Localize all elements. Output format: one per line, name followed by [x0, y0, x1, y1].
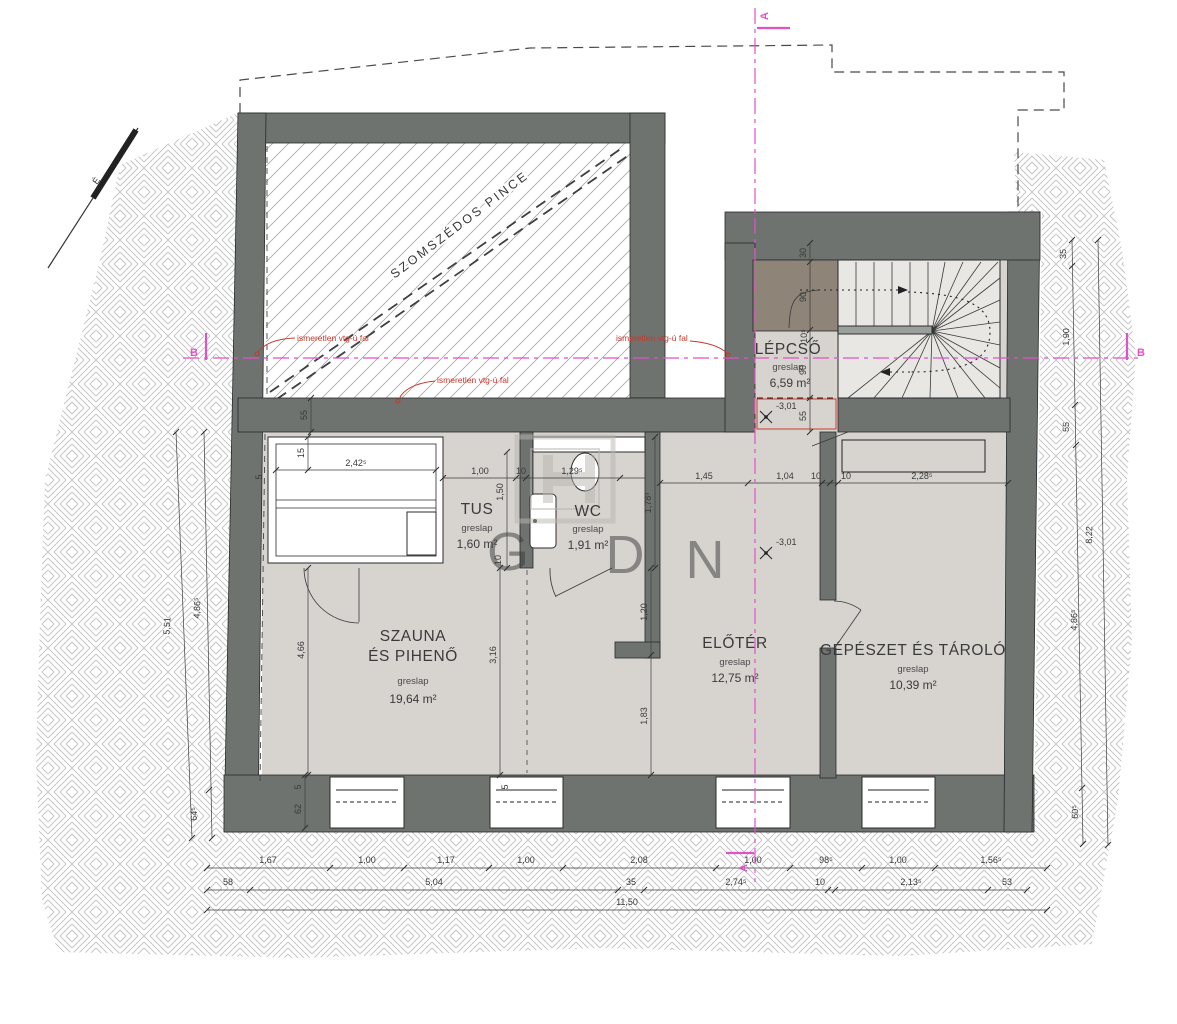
dim-stair-90b: 90	[798, 365, 808, 375]
dim-r2-2: 35	[626, 877, 636, 887]
wall-note-1: ismeretlen vtg-ú fal	[297, 333, 369, 343]
tus-name: TUS	[461, 501, 494, 518]
watermark-letter-g: G	[487, 522, 529, 582]
wall-row-horizontal	[238, 398, 755, 432]
room-label-tus: TUS greslap 1,60 m²	[457, 501, 498, 551]
section-b-left-label: B	[190, 347, 198, 359]
dim-cabin-w: 2,42⁵	[345, 458, 367, 468]
dim-window2-5: 5	[500, 784, 510, 789]
dim-r2-4: 10	[815, 877, 825, 887]
window-1	[330, 777, 404, 828]
dim-r1-2: 1,17	[437, 855, 455, 865]
dim-left-total: 5,51	[162, 617, 173, 635]
section-a-bottom-label: A	[738, 864, 750, 872]
dim-r1-1: 1,00	[358, 855, 376, 865]
dim-eloter-3: 10	[811, 471, 821, 481]
eloter-material: greslap	[719, 657, 750, 668]
gep-duct	[842, 440, 985, 472]
wall-note-leader-2	[690, 341, 727, 353]
sauna-material: greslap	[397, 676, 428, 687]
wall-stair-left	[725, 243, 755, 432]
watermark-letter-d: D	[606, 525, 645, 585]
wall-right	[1004, 212, 1040, 832]
dim-tuswc-wall: 10	[516, 466, 526, 476]
gepeszet-name: GÉPÉSZET ÉS TÁROLÓ	[820, 642, 1006, 659]
sauna-area: 19,64 m²	[389, 692, 436, 706]
dim-wc-w: 1,29⁵	[561, 466, 583, 476]
dim-r1-8: 1,56⁵	[980, 855, 1002, 865]
sauna-stove	[407, 512, 436, 555]
dim-stair-55: 55	[798, 411, 808, 421]
floor-plan-drawing: SZOMSZÉDOS PINCE	[0, 0, 1177, 1024]
wc-name: WC	[574, 503, 601, 520]
dim-r2-5: 2,13⁵	[900, 877, 922, 887]
wall-top	[238, 113, 665, 143]
dim-right-total: 8,22	[1084, 526, 1094, 544]
dim-right-190: 1,90	[1061, 328, 1071, 346]
wall-gep-divider-upper	[820, 432, 836, 600]
wall-stub	[615, 642, 660, 658]
dim-v-316: 3,16	[488, 646, 498, 664]
wall-stair-top	[725, 212, 1040, 260]
floor-plan-canvas: SZOMSZÉDOS PINCE	[0, 0, 1177, 1024]
dim-v-183: 1,83	[639, 707, 649, 725]
dim-stair-30: 30	[798, 248, 808, 258]
eloter-name: ELŐTÉR	[702, 635, 768, 652]
dim-stair-90a: 90	[798, 292, 808, 302]
sauna-name-line1: SZAUNA	[380, 628, 447, 645]
dim-v-15: 15	[296, 448, 306, 458]
window-4	[862, 777, 935, 828]
section-a-top-label: A	[759, 12, 771, 20]
dim-right-486: 4,86⁵	[1069, 609, 1079, 631]
wall-mid-vertical	[630, 113, 665, 398]
wall-stair-bottom	[838, 398, 1010, 432]
lepcso-name: LÉPCSŐ	[755, 341, 822, 358]
window-3	[716, 777, 790, 828]
dim-r2-6: 53	[1002, 877, 1012, 887]
stair-landing	[753, 260, 838, 331]
lepcso-area: 6,59 m²	[770, 376, 811, 390]
section-b-right-label: B	[1137, 347, 1145, 359]
neighbor-cellar-area: SZOMSZÉDOS PINCE	[266, 143, 632, 399]
level-mark-2: -3,01	[776, 537, 797, 547]
dim-right-55: 55	[1061, 422, 1071, 432]
dim-v-466: 4,66	[296, 641, 306, 659]
dim-gep-2: 2,28⁵	[911, 471, 933, 481]
dim-window-62: 62	[293, 804, 303, 814]
dim-r1-6: 98⁵	[819, 855, 833, 865]
stair-rail	[838, 326, 932, 334]
dim-v-5: 5	[254, 474, 264, 479]
dim-right-60: 60⁵	[1070, 805, 1080, 819]
dim-gep-1: 10	[841, 471, 851, 481]
dim-r1-3: 1,00	[517, 855, 535, 865]
dim-r1-5: 1,00	[744, 855, 762, 865]
dim-r1-7: 1,00	[889, 855, 907, 865]
dim-window-5: 5	[293, 784, 303, 789]
eloter-area: 12,75 m²	[711, 671, 758, 685]
dim-stair-10: 10⁵	[799, 329, 809, 343]
dim-v-120: 1,20	[639, 603, 649, 621]
watermark-letter-n: N	[686, 530, 725, 590]
wc-material: greslap	[572, 524, 603, 535]
wall-note-2: ismeretlen vtg-ú fal	[616, 333, 688, 343]
level-mark-1: -3,01	[776, 401, 797, 411]
wall-note-3: ismeretlen vtg-ú fal	[437, 375, 509, 385]
dim-r1-0: 1,67	[259, 855, 277, 865]
dim-r1-4: 2,08	[630, 855, 648, 865]
dim-eloter-1: 1,45	[695, 471, 713, 481]
tus-area: 1,60 m²	[457, 537, 498, 551]
dim-r2-0: 58	[223, 877, 233, 887]
dim-tus-w: 1,00	[471, 466, 489, 476]
dim-v-10: 10	[493, 555, 503, 565]
dim-left-wall: 64⁵	[189, 807, 199, 821]
dim-r2-3: 2,74⁵	[725, 877, 747, 887]
gepeszet-area: 10,39 m²	[889, 678, 936, 692]
dim-v-55: 55	[299, 410, 309, 420]
dim-eloter-2: 1,04	[776, 471, 794, 481]
wall-gep-divider-lower	[820, 648, 836, 778]
dim-v-178: 1,78³	[643, 493, 653, 514]
tus-material: greslap	[461, 523, 492, 534]
sauna-name-line2: ÉS PIHENŐ	[368, 648, 458, 665]
dim-left-room: 4,86⁵	[192, 597, 203, 619]
dim-right-35: 35	[1058, 249, 1068, 259]
gepeszet-material: greslap	[897, 664, 928, 675]
dim-total: 11,50	[616, 897, 638, 907]
wall-wc-right	[645, 432, 660, 658]
dim-r2-1: 5,04	[425, 877, 443, 887]
dim-v-150: 1,50	[495, 483, 505, 501]
wc-area: 1,91 m²	[568, 538, 609, 552]
